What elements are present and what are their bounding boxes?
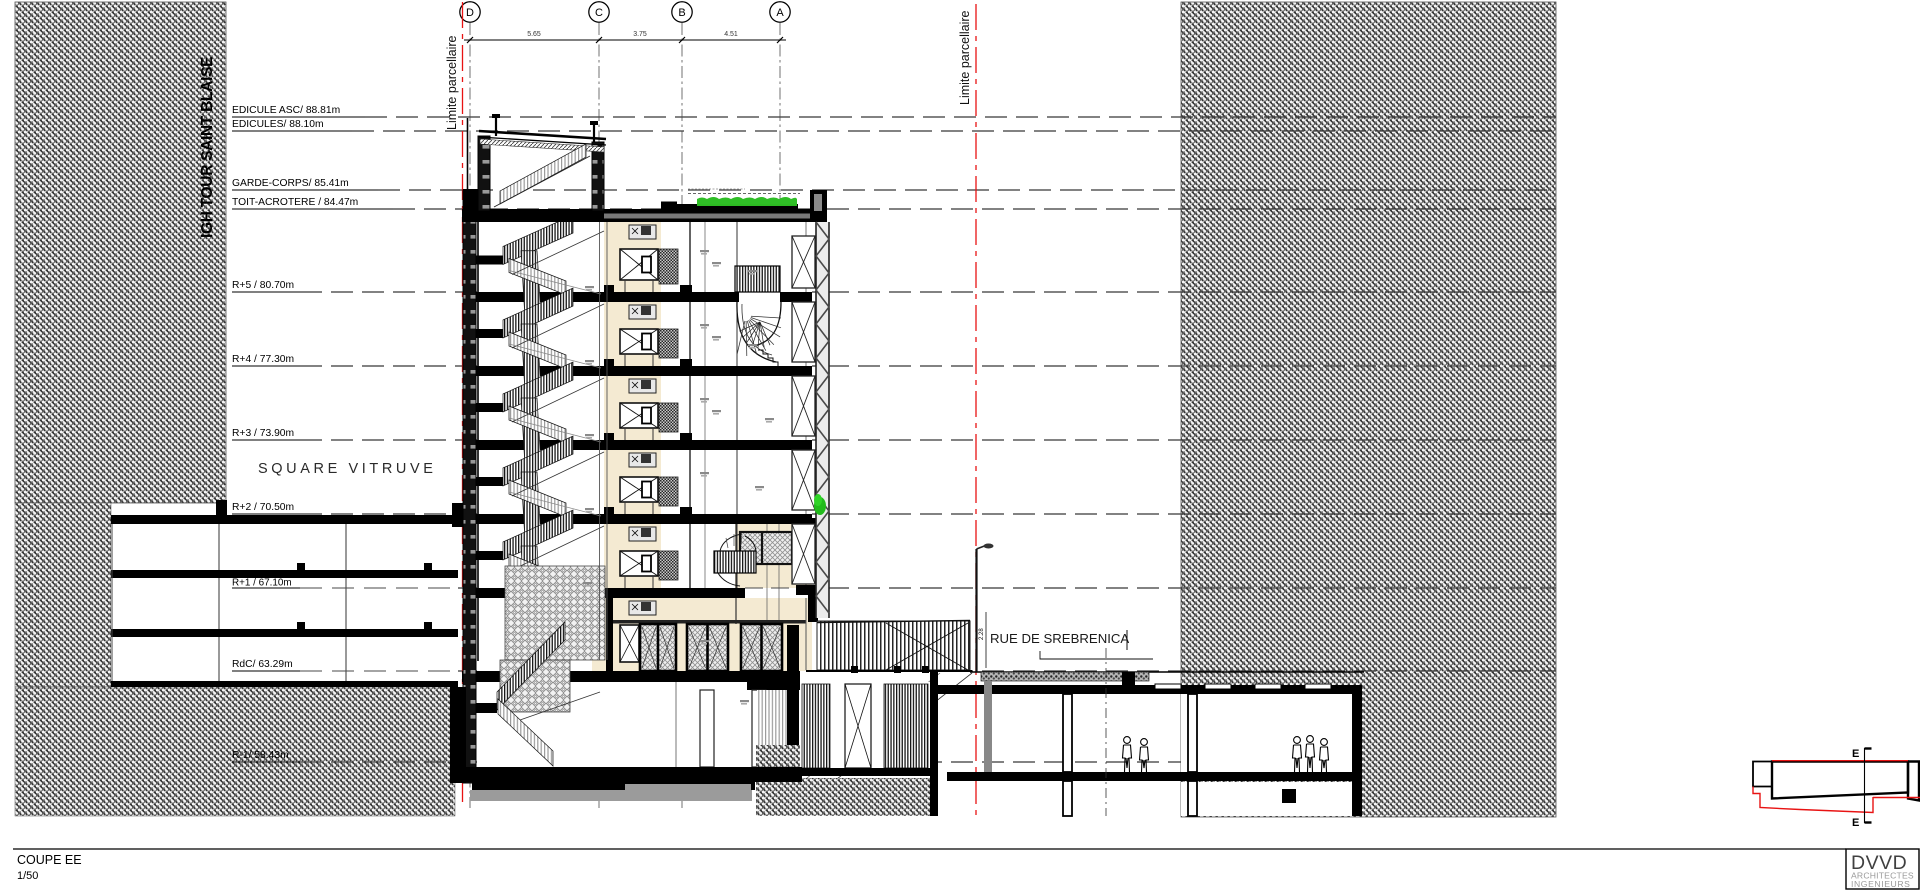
svg-text:C: C [595,7,603,19]
svg-text:RUE DE SREBRENICA: RUE DE SREBRENICA [990,631,1129,646]
svg-text:E: E [1852,817,1859,829]
svg-text:R+2 / 70.50m: R+2 / 70.50m [232,502,294,513]
svg-text:IGH TOUR SAINT BLAISE: IGH TOUR SAINT BLAISE [199,57,216,238]
svg-text:R+5 / 80.70m: R+5 / 80.70m [232,280,294,291]
svg-text:Limite parcellaire: Limite parcellaire [958,10,972,105]
svg-text:1/50: 1/50 [17,870,38,882]
svg-text:R+1 / 67.10m: R+1 / 67.10m [232,578,292,589]
svg-text:R+4 / 77.30m: R+4 / 77.30m [232,354,294,365]
svg-text:GARDE-CORPS/ 85.41m: GARDE-CORPS/ 85.41m [232,178,349,189]
svg-text:B: B [678,7,685,19]
svg-text:E: E [1852,748,1859,760]
svg-text:INGENIEURS: INGENIEURS [1851,879,1910,889]
svg-text:COUPE EE: COUPE EE [17,853,82,867]
svg-text:RdC/ 63.29m: RdC/ 63.29m [232,659,293,670]
svg-text:Limite parcellaire: Limite parcellaire [445,35,459,130]
svg-text:SQUARE VITRUVE: SQUARE VITRUVE [258,461,437,477]
svg-text:EDICULE ASC/ 88.81m: EDICULE ASC/ 88.81m [232,105,340,116]
svg-text:A: A [776,7,784,19]
svg-text:4.51: 4.51 [724,31,738,38]
svg-text:R-1/ 58.43m: R-1/ 58.43m [232,750,289,761]
svg-text:TOIT-ACROTERE / 84.47m: TOIT-ACROTERE / 84.47m [232,197,358,208]
svg-text:2.28: 2.28 [979,628,985,640]
svg-text:3.75: 3.75 [633,31,647,38]
svg-text:D: D [466,7,474,19]
svg-text:EDICULES/ 88.10m: EDICULES/ 88.10m [232,119,324,130]
svg-text:5.65: 5.65 [527,31,541,38]
svg-text:R+3 / 73.90m: R+3 / 73.90m [232,428,294,439]
